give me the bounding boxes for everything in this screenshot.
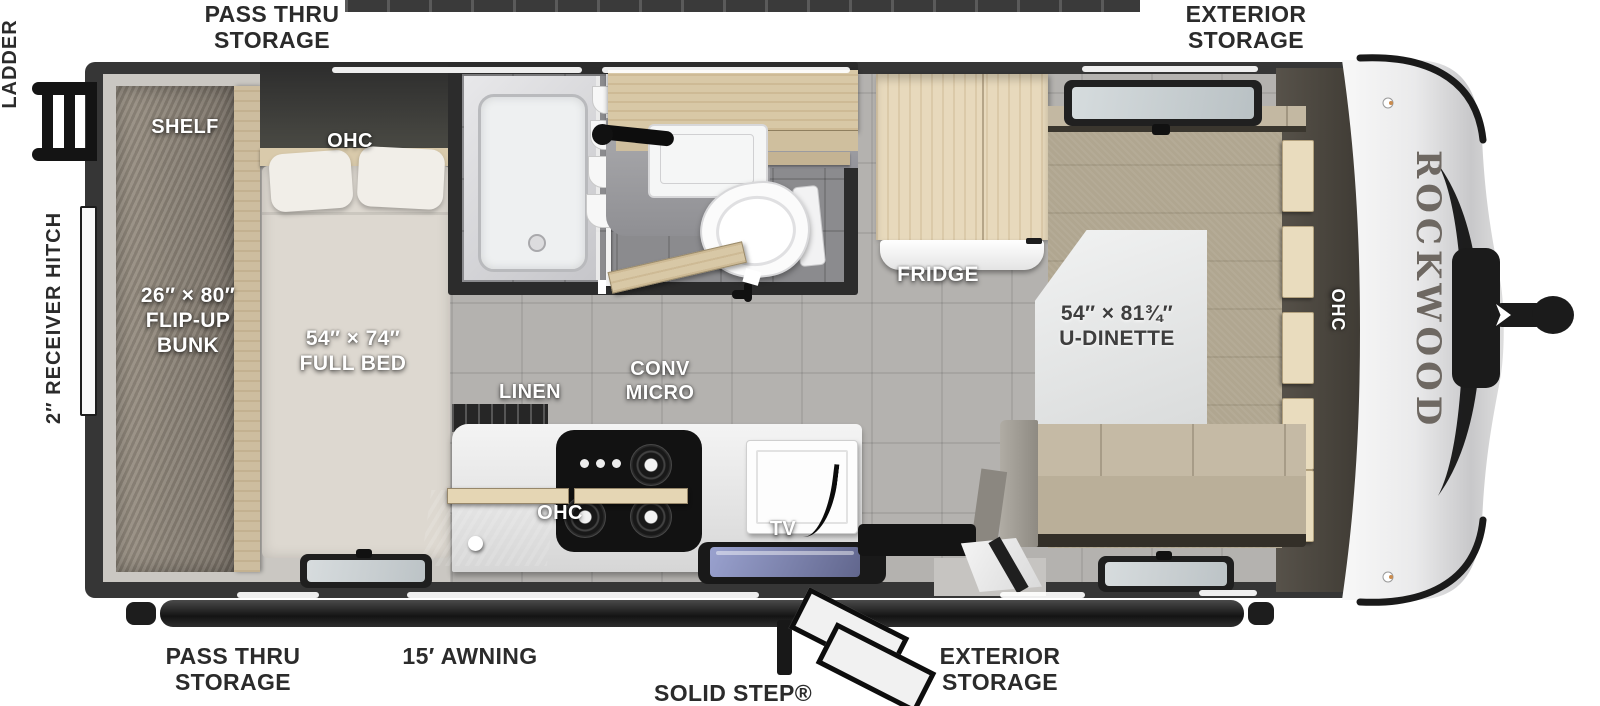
dinette-top-window-glass: [1072, 87, 1254, 119]
storage-door-outline: [237, 592, 319, 598]
bed-ohc-label: OHC: [310, 130, 390, 154]
storage-door-outline: [1000, 592, 1085, 598]
marker-light-lens: [1389, 101, 1393, 105]
vanity-overhead-cabinet: [608, 70, 858, 130]
shelf-label: SHELF: [130, 116, 240, 140]
awning-label: 15′ AWNING: [355, 643, 585, 669]
bunk-label: 26″ × 80″ FLIP-UP BUNK: [108, 284, 268, 358]
bedroom-window-glass: [307, 560, 425, 582]
rear-bumper: [80, 206, 97, 416]
sink-highlight: [716, 551, 854, 555]
window-latch: [1156, 551, 1172, 560]
dinette-top-bench-edge: [1048, 126, 1306, 132]
ladder-rung: [64, 82, 75, 161]
bathroom-sink-basin: [660, 134, 754, 184]
kitchen-ohc-label: OHC: [520, 502, 600, 526]
cooktop-burner: [630, 444, 672, 486]
pass-thru-storage-top-label: PASS THRU STORAGE: [159, 1, 385, 53]
cabinet-knob: [468, 536, 483, 551]
marker-light-lens: [1389, 575, 1393, 579]
ladder-rung: [42, 82, 53, 161]
exterior-storage-bottom-label: EXTERIOR STORAGE: [887, 643, 1113, 695]
fridge-drawer-latch: [1026, 238, 1042, 244]
bed-fold-line: [262, 212, 450, 215]
cooktop-knob-dot: [596, 459, 605, 468]
dinette-headrest-slat: [1282, 226, 1314, 298]
receiver-hitch-label: 2″ RECEIVER HITCH: [43, 208, 67, 428]
dinette-arm: [1000, 420, 1038, 547]
exterior-storage-top-label: EXTERIOR STORAGE: [1133, 1, 1359, 53]
storage-door-outline: [1082, 66, 1258, 72]
fridge-label: FRIDGE: [878, 263, 998, 288]
dinette-bottom-edge: [1010, 534, 1306, 547]
cooktop-knob-dot: [612, 459, 621, 468]
storage-door-outline: [332, 67, 582, 73]
door-jamb: [598, 280, 606, 294]
shower-drain: [528, 234, 546, 252]
pillow: [356, 146, 445, 210]
dinette-bottom-seat: [1010, 476, 1306, 536]
pass-thru-storage-bottom-label: PASS THRU STORAGE: [120, 643, 346, 695]
awning-end-cap: [126, 602, 156, 625]
cooktop-knob-dot: [580, 459, 589, 468]
window-latch: [1152, 124, 1170, 135]
bathroom-faucet-knob: [592, 124, 613, 145]
roof-strip: [345, 0, 1140, 12]
ladder-label: LADDER: [0, 9, 23, 119]
solid-step-entry-label: SOLID STEP® ENTRY: [618, 680, 848, 706]
vanity-shelf-board: [758, 152, 850, 165]
dinette-headrest-slat: [1282, 312, 1314, 384]
dinette-bottom-backrest: [1010, 424, 1306, 478]
dinette-label: 54″ × 81¾″ U-DINETTE: [1037, 302, 1197, 352]
storage-door-outline: [1199, 590, 1257, 596]
window-latch: [356, 549, 372, 558]
storage-door-outline: [407, 592, 759, 598]
awning-end-cap: [1248, 602, 1274, 625]
ladder-rung: [86, 82, 97, 161]
entry-step-box: [858, 524, 976, 556]
floorplan-canvas: SHELF 26″ × 80″ FLIP-UP BUNK OHC 54″ × 7…: [0, 0, 1600, 706]
bed-label: 54″ × 74″ FULL BED: [273, 327, 433, 377]
linen-label: LINEN: [460, 381, 600, 405]
conv-micro-label: CONV MICRO: [590, 358, 730, 405]
tv-label: TV: [748, 518, 818, 542]
storage-door-outline: [602, 67, 850, 73]
jack-handle-knob: [1532, 296, 1574, 334]
fridge-cabinet-seam: [982, 74, 984, 240]
dinette-bottom-window-glass: [1105, 562, 1227, 586]
awning-roll: [160, 600, 1244, 627]
fridge-cabinet: [876, 74, 1048, 240]
dinette-headrest-slat: [1282, 140, 1314, 212]
pillow: [268, 149, 354, 213]
bathroom-door-handle: [744, 282, 752, 302]
